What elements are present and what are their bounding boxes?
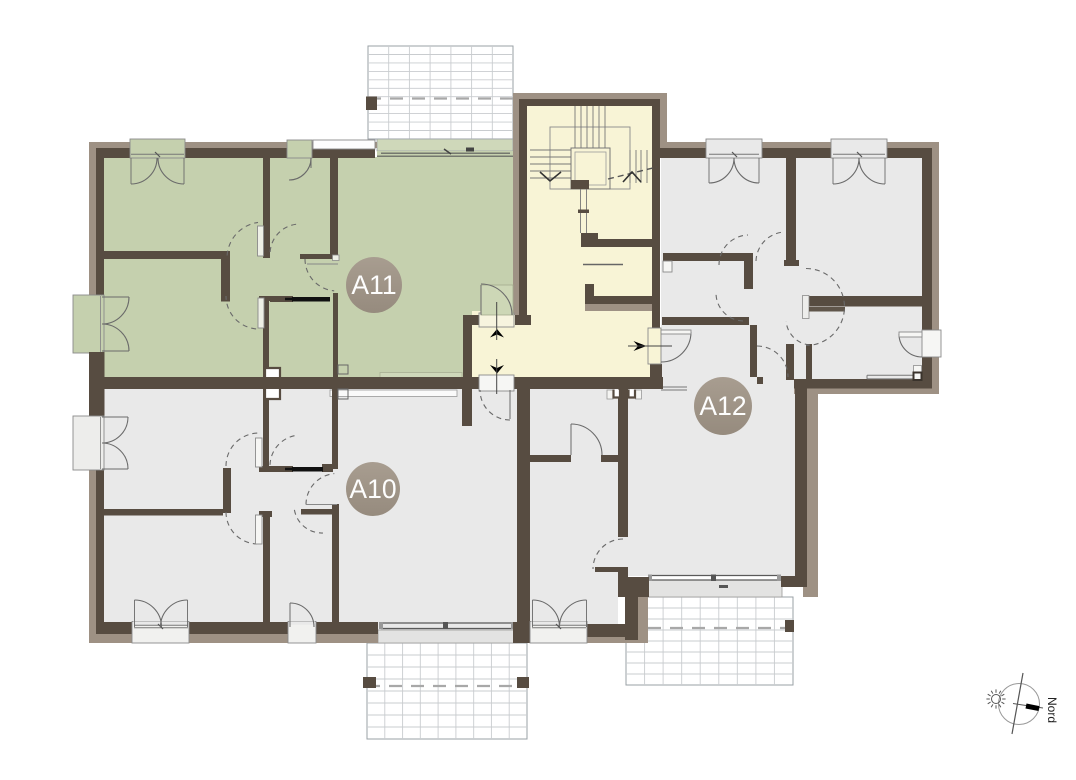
svg-text:A12: A12 (699, 391, 746, 421)
svg-text:Nord: Nord (1045, 697, 1059, 723)
svg-text:A11: A11 (351, 270, 396, 300)
svg-text:A10: A10 (349, 474, 396, 504)
